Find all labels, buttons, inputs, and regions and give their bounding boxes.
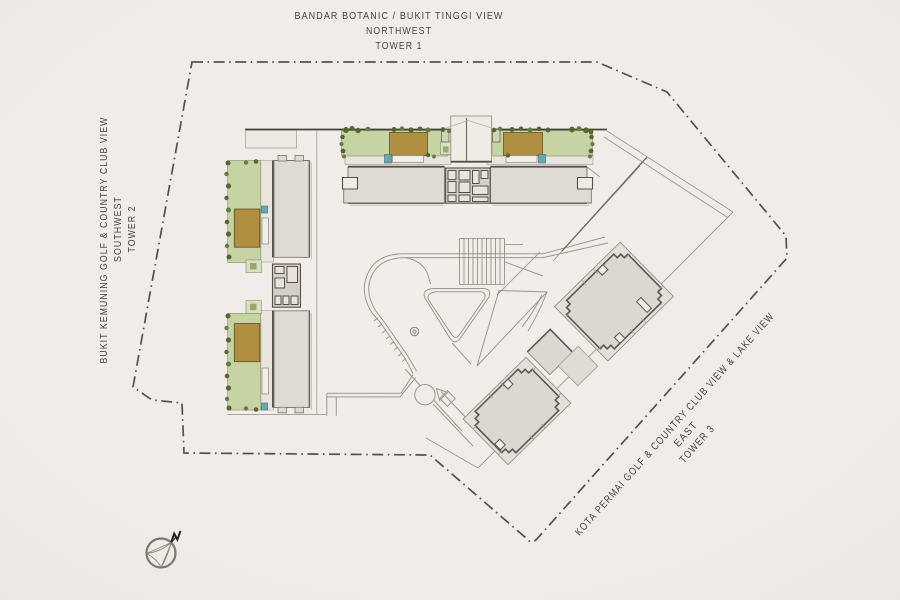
svg-text:SOUTHWEST: SOUTHWEST — [112, 196, 124, 262]
svg-text:BUKIT KEMUNING GOLF & COUNTRY: BUKIT KEMUNING GOLF & COUNTRY CLUB VIEW — [98, 117, 110, 364]
svg-text:BANDAR BOTANIC / BUKIT TINGGI: BANDAR BOTANIC / BUKIT TINGGI VIEW — [295, 10, 504, 22]
svg-text:TOWER 1: TOWER 1 — [376, 40, 423, 52]
svg-text:NORTHWEST: NORTHWEST — [366, 25, 432, 37]
svg-text:TOWER 2: TOWER 2 — [126, 206, 138, 253]
